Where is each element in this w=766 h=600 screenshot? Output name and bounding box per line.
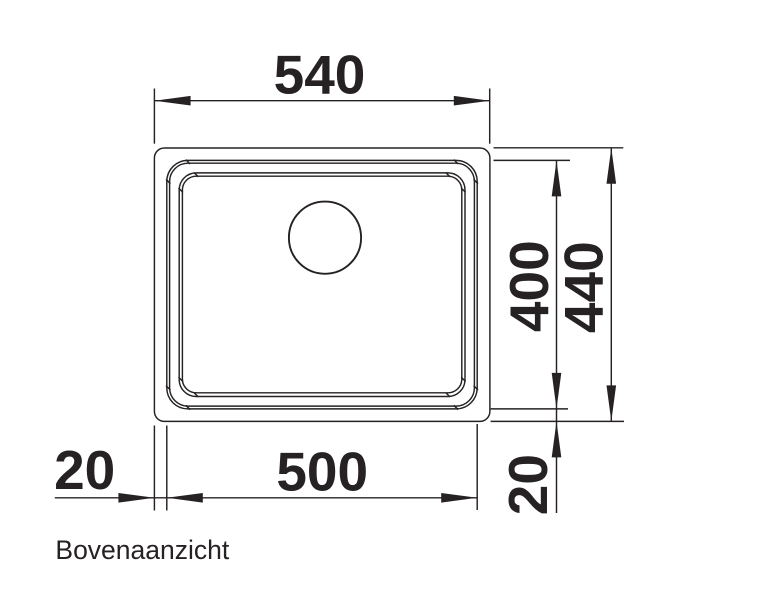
svg-text:20: 20 <box>497 454 559 515</box>
svg-text:20: 20 <box>54 439 115 501</box>
svg-text:500: 500 <box>276 440 368 502</box>
svg-text:Bovenaanzicht: Bovenaanzicht <box>55 535 229 565</box>
svg-text:440: 440 <box>552 241 614 333</box>
svg-text:400: 400 <box>498 240 560 332</box>
svg-text:540: 540 <box>274 44 366 106</box>
